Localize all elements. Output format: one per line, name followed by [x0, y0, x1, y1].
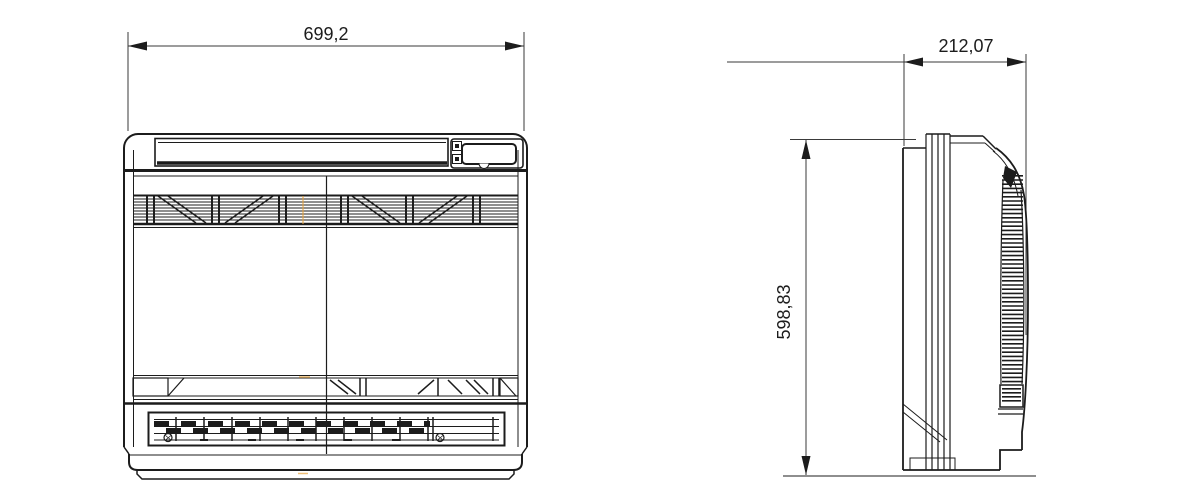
upper-grille-vanes [158, 196, 467, 223]
back-panel-strips [926, 134, 950, 470]
dimensional-drawing: 699,2 [0, 0, 1200, 492]
side-front-grille [1001, 166, 1024, 384]
width-dimension-label: 699,2 [303, 24, 348, 44]
arrowhead-right [505, 42, 524, 51]
base-strip [137, 470, 514, 479]
bottom-step [1000, 450, 1022, 470]
upper-grille-slats [133, 199, 518, 220]
technical-drawing-canvas: 699,2 [0, 0, 1200, 492]
height-dimension-label: 598,83 [774, 284, 794, 339]
vane-marks [330, 380, 488, 394]
lower-vane-band [124, 376, 527, 404]
arrowhead-top [802, 140, 811, 159]
control-buttons [453, 142, 462, 164]
side-grille-block [998, 385, 1023, 414]
depth-dimension [727, 54, 1026, 335]
arrowhead-left [904, 58, 923, 67]
front-outline [124, 134, 527, 454]
height-dimension [790, 140, 916, 476]
width-dimension [128, 32, 524, 131]
arrowhead-right [1007, 58, 1026, 67]
arrowhead-bottom [802, 456, 811, 475]
rear-pipe-cover-lines [903, 404, 947, 442]
depth-dimension-label: 212,07 [938, 36, 993, 56]
vane-end-cap-left [133, 378, 168, 396]
top-outlet-slot [155, 139, 448, 167]
front-view [124, 134, 527, 479]
upper-grille [133, 195, 518, 224]
side-view [783, 134, 1036, 476]
arrowhead-left [128, 42, 147, 51]
base-plinth [129, 454, 522, 479]
